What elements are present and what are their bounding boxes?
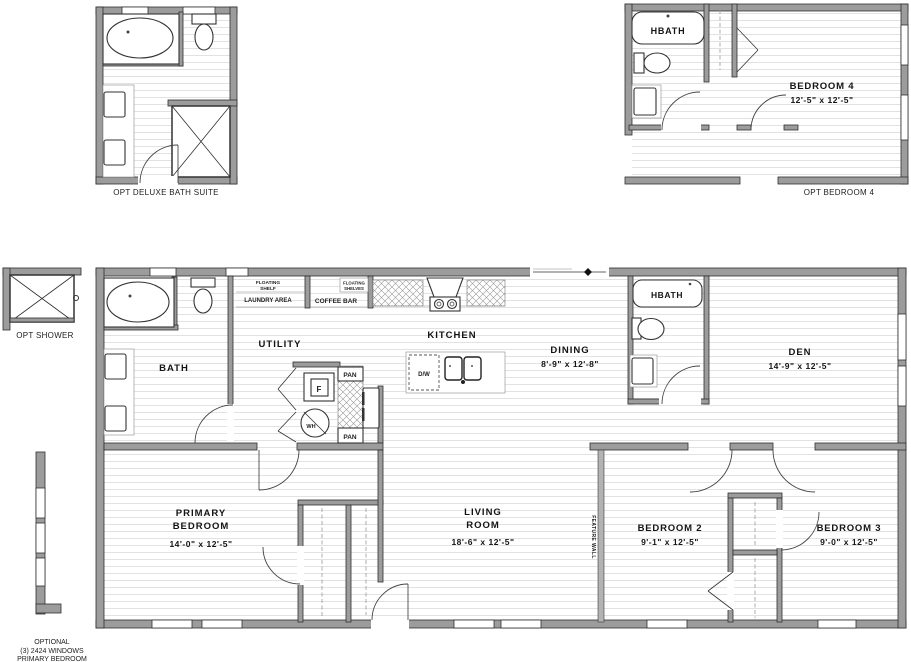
living-dims: 18'-6" x 12'-5"	[451, 537, 514, 547]
freezer: F	[304, 373, 334, 401]
vanity-sinks	[104, 349, 134, 435]
kitchen-label: KITCHEN	[427, 330, 476, 341]
laundry-area-label: LAUNDRY AREA	[244, 298, 292, 304]
water-heater-label: WH	[306, 424, 315, 430]
bedroom3-name: BEDROOM 3	[817, 523, 882, 534]
optional-windows-detail: OPTIONAL (3) 2424 WINDOWS PRIMARY BEDROO…	[17, 452, 87, 662]
bedroom4-hbath-tub: HBATH	[632, 12, 704, 44]
hbath-sink	[630, 355, 657, 387]
window	[454, 620, 494, 628]
window	[150, 268, 176, 276]
opt-bedroom4-caption: OPT BEDROOM 4	[804, 188, 875, 197]
primary-name-line1: PRIMARY	[176, 508, 226, 519]
refrigerator	[362, 388, 379, 428]
optional-window-3	[36, 558, 45, 586]
bedroom2-name: BEDROOM 2	[638, 523, 703, 534]
floating-shelf-label-1: FLOATING	[256, 280, 280, 286]
pantry-bottom-label: PAN	[343, 434, 357, 441]
optional-window-1	[36, 488, 45, 518]
coffee-bar-label: COFFEE BAR	[315, 298, 358, 305]
bedroom3-dims: 9'-0" x 12'-5"	[820, 537, 878, 547]
bedroom4-toilet	[634, 53, 670, 73]
window	[898, 314, 906, 360]
primary-dims: 14'-0" x 12'-5"	[169, 539, 232, 549]
bathtub	[104, 278, 174, 327]
window	[183, 7, 215, 14]
water-heater: WH	[301, 409, 329, 437]
window	[152, 620, 192, 628]
den-dims: 14'-9" x 12'-5"	[768, 361, 831, 371]
floating-shelf-label-2: SHELF	[260, 286, 276, 292]
living-name-line1: LIVING	[464, 507, 502, 518]
window	[202, 620, 242, 628]
window	[901, 25, 908, 65]
floor-plan-drawing: OPT DELUXE BATH SUITE HBATH	[0, 0, 911, 662]
bedroom4-name: BEDROOM 4	[790, 81, 855, 92]
floor-plan-canvas: OPT DELUXE BATH SUITE HBATH	[0, 0, 911, 662]
floating-shelves-label-2: SHELVES	[344, 286, 364, 291]
den-label: DEN	[788, 347, 811, 358]
opt-bedroom-4-plan: HBATH BEDROOM 4 12'-5" x 12'-5" OPT BEDR…	[625, 4, 908, 197]
opt-shower-plan: OPT SHOWER	[3, 268, 81, 340]
dining-dims: 8'-9" x 12'-8"	[541, 359, 599, 369]
window	[818, 620, 856, 628]
dishwasher-label: D/W	[418, 372, 430, 378]
patio-entry-door	[530, 267, 609, 277]
bathtub	[103, 14, 179, 64]
main-floor-plan: FEATURE WALL BATH FLO	[96, 267, 906, 629]
kitchen-island: D/W	[406, 352, 505, 393]
window	[122, 7, 148, 14]
bedroom4-sink	[632, 85, 661, 118]
deluxe-bath-caption: OPT DELUXE BATH SUITE	[113, 188, 219, 197]
window	[501, 620, 541, 628]
window	[898, 366, 906, 406]
hbath-toilet	[632, 318, 664, 340]
freezer-label: F	[317, 385, 322, 394]
bedroom2-dims: 9'-1" x 12'-5"	[641, 537, 699, 547]
primary-name-line2: BEDROOM	[173, 521, 230, 532]
deluxe-bath-suite-plan: OPT DELUXE BATH SUITE	[96, 7, 237, 197]
vanity-sinks	[103, 85, 134, 177]
pantry: PAN PAN	[338, 366, 363, 443]
dining-label: DINING	[550, 345, 589, 356]
opt-shower-caption: OPT SHOWER	[16, 331, 74, 340]
window	[647, 620, 687, 628]
pantry-top-label: PAN	[343, 372, 357, 379]
optional-windows-caption-line3: PRIMARY BEDROOM	[17, 656, 87, 662]
kitchen-counter	[467, 280, 505, 306]
utility-label: UTILITY	[259, 339, 302, 350]
kitchen-counter	[373, 280, 423, 306]
hbath-label: HBATH	[651, 290, 683, 300]
optional-windows-caption-line1: OPTIONAL	[34, 639, 70, 646]
living-name-line2: ROOM	[466, 520, 500, 531]
floating-shelves-label-1: FLOATING	[343, 281, 365, 286]
hbath-tub: HBATH	[633, 280, 702, 307]
window	[901, 95, 908, 140]
window	[226, 268, 248, 276]
feature-wall-label: FEATURE WALL	[590, 515, 596, 559]
optional-windows-caption-line2: (3) 2424 WINDOWS	[20, 648, 84, 655]
bedroom4-dims: 12'-5" x 12'-5"	[790, 95, 853, 105]
bedroom4-hbath-label: HBATH	[651, 26, 686, 36]
optional-window-2	[36, 523, 45, 553]
bath-label: BATH	[159, 363, 189, 374]
